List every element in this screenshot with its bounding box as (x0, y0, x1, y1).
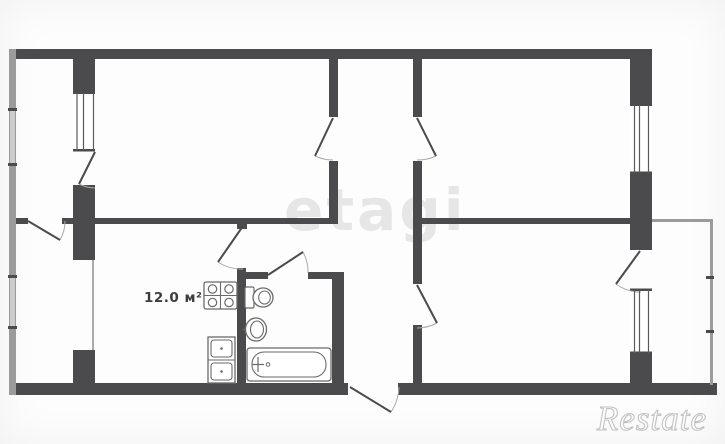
door-leaf (218, 226, 243, 262)
mid-wall-right (421, 218, 630, 224)
door-arc (303, 252, 308, 273)
floor-plan: etagi 12.0 м² Restate (0, 0, 725, 444)
door-leaf (315, 118, 333, 156)
door-arc (315, 156, 333, 160)
door-arc (218, 262, 243, 269)
floor-plan-svg (0, 0, 725, 444)
window-tick (8, 163, 17, 166)
door-arc (417, 156, 436, 160)
entrance-door-arc (391, 387, 399, 412)
outer-wall-right-mid (630, 173, 652, 250)
hall-wall-right-lower (413, 325, 422, 395)
door-leaf (417, 285, 437, 323)
outer-wall-left-thin (9, 49, 16, 395)
mid-wall-left-stub (62, 218, 73, 224)
door-leaf (79, 152, 95, 184)
outer-wall-bottom-left (10, 383, 348, 395)
watermark-restate: Restate (597, 399, 707, 439)
loggia-wall-right (710, 219, 713, 385)
entrance-door-leaf (350, 387, 391, 412)
left-window-band (10, 110, 15, 165)
sink-drain (220, 370, 223, 373)
bath-wall-top-left (237, 272, 268, 279)
bath-wall-right (332, 272, 344, 383)
door-leaf (268, 252, 303, 275)
hall-wall-right-upper (413, 56, 422, 117)
window-tick (8, 275, 17, 278)
hall-wall-right-mid (413, 161, 422, 284)
kitchen-bath-wall (237, 268, 246, 383)
door-leaf (417, 118, 436, 156)
mid-wall-main (95, 218, 335, 224)
hall-wall-left-lower (329, 161, 338, 224)
kitchen-loggia-window (92, 260, 94, 350)
window-tick (8, 326, 17, 329)
outer-wall-right-upper (630, 49, 652, 105)
loggia-tick (706, 276, 714, 279)
sink-drain (220, 347, 223, 350)
left-window-band (10, 277, 15, 328)
door-leaf (616, 251, 640, 284)
left-partition-pier-bottom (73, 350, 95, 395)
left-partition-pier-top (73, 49, 95, 93)
window-tick (8, 108, 17, 111)
loggia-wall-top (652, 219, 713, 222)
loggia-tick (706, 330, 714, 333)
outer-wall-right-lower (630, 353, 652, 395)
door-leaf (28, 221, 60, 240)
room-area-label: 12.0 м² (144, 290, 202, 306)
left-partition-pier-mid (73, 185, 95, 260)
outer-wall-bottom-right (398, 383, 717, 395)
hall-wall-left-upper (329, 56, 338, 117)
